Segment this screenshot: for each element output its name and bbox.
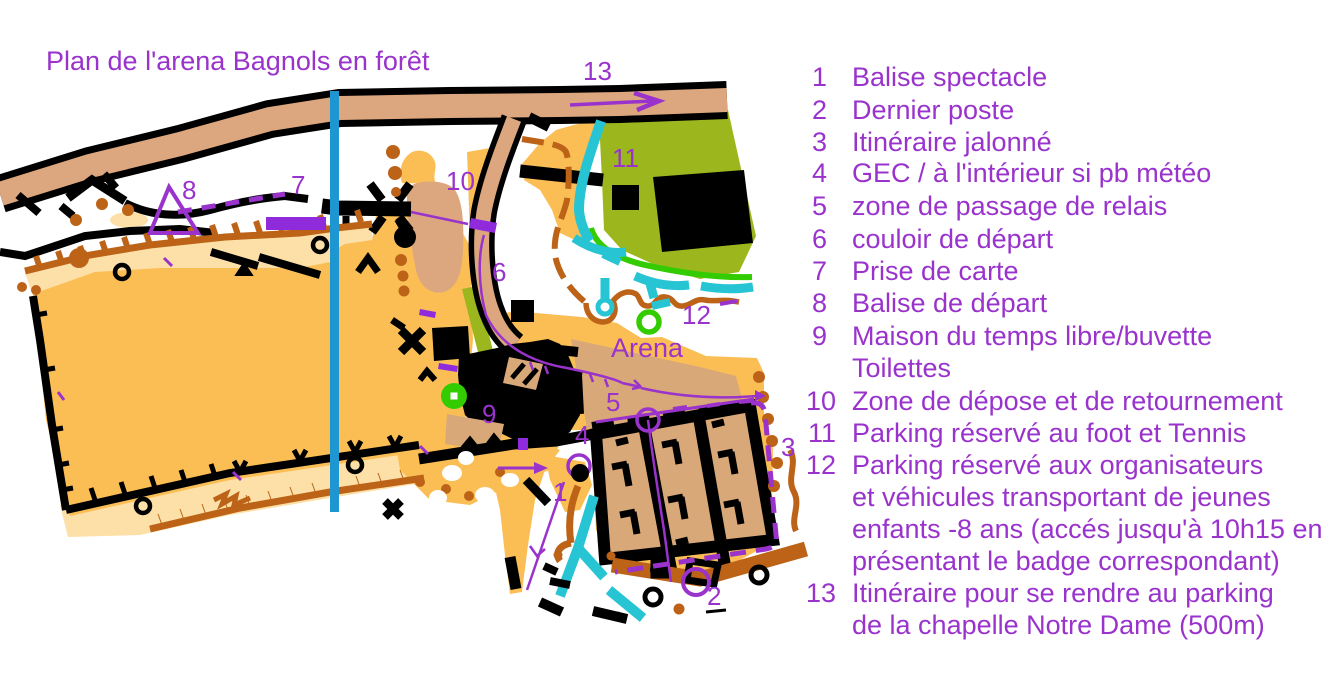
svg-text:Parking réservé aux organisate: Parking réservé aux organisateurs: [852, 450, 1263, 480]
svg-text:enfants -8 ans (accés jusqu'à: enfants -8 ans (accés jusqu'à 10h15 en: [852, 514, 1322, 544]
svg-text:2: 2: [812, 95, 827, 125]
svg-text:11: 11: [808, 418, 836, 448]
svg-text:Balise spectacle: Balise spectacle: [852, 62, 1047, 92]
svg-text:7: 7: [812, 256, 827, 286]
svg-text:13: 13: [583, 56, 612, 86]
svg-text:12: 12: [682, 300, 711, 330]
svg-text:4: 4: [575, 420, 589, 450]
svg-text:5: 5: [812, 191, 827, 221]
svg-text:2: 2: [707, 581, 721, 611]
svg-text:et véhicules transportant de j: et véhicules transportant de jeunes: [852, 482, 1271, 512]
svg-text:Prise de carte: Prise de carte: [852, 256, 1019, 286]
svg-text:présentant le badge correspond: présentant le badge correspondant): [852, 546, 1280, 576]
svg-text:Toilettes: Toilettes: [852, 353, 951, 383]
svg-text:Dernier poste: Dernier poste: [852, 95, 1014, 125]
svg-text:4: 4: [812, 158, 827, 188]
svg-text:12: 12: [806, 450, 836, 480]
svg-text:6: 6: [812, 224, 827, 254]
svg-text:8: 8: [812, 288, 827, 318]
svg-text:10: 10: [446, 166, 475, 196]
svg-text:Itinéraire pour se rendre au p: Itinéraire pour se rendre au parking: [852, 578, 1274, 608]
svg-text:couloir de départ: couloir de départ: [852, 224, 1054, 254]
svg-text:8: 8: [182, 175, 196, 205]
svg-text:10: 10: [806, 386, 836, 416]
svg-text:Plan de l'arena Bagnols en for: Plan de l'arena Bagnols en forêt: [46, 46, 430, 76]
svg-text:13: 13: [806, 578, 836, 608]
svg-text:de la chapelle Notre Dame (500: de la chapelle Notre Dame (500m): [852, 610, 1265, 640]
svg-text:Parking réservé au foot et Ten: Parking réservé au foot et Tennis: [852, 418, 1246, 448]
svg-text:3: 3: [781, 432, 795, 462]
svg-text:Itinéraire jalonné: Itinéraire jalonné: [852, 127, 1052, 157]
svg-text:1: 1: [812, 62, 827, 92]
svg-text:11: 11: [612, 143, 639, 173]
svg-text:3: 3: [812, 127, 827, 157]
svg-text:6: 6: [492, 257, 506, 287]
svg-text:zone de passage de relais: zone de passage de relais: [852, 191, 1167, 221]
svg-text:GEC / à l'intérieur si pb mété: GEC / à l'intérieur si pb météo: [852, 158, 1211, 188]
svg-text:Maison du temps libre/buvette: Maison du temps libre/buvette: [852, 321, 1212, 351]
svg-text:9: 9: [812, 321, 827, 351]
svg-text:7: 7: [291, 170, 305, 200]
svg-text:Zone de dépose et de retournem: Zone de dépose et de retournement: [852, 386, 1283, 416]
svg-text:9: 9: [482, 399, 496, 429]
svg-text:Balise de départ: Balise de départ: [852, 288, 1048, 318]
svg-text:Arena: Arena: [611, 333, 684, 363]
svg-text:1: 1: [553, 477, 567, 507]
svg-text:5: 5: [606, 387, 620, 417]
